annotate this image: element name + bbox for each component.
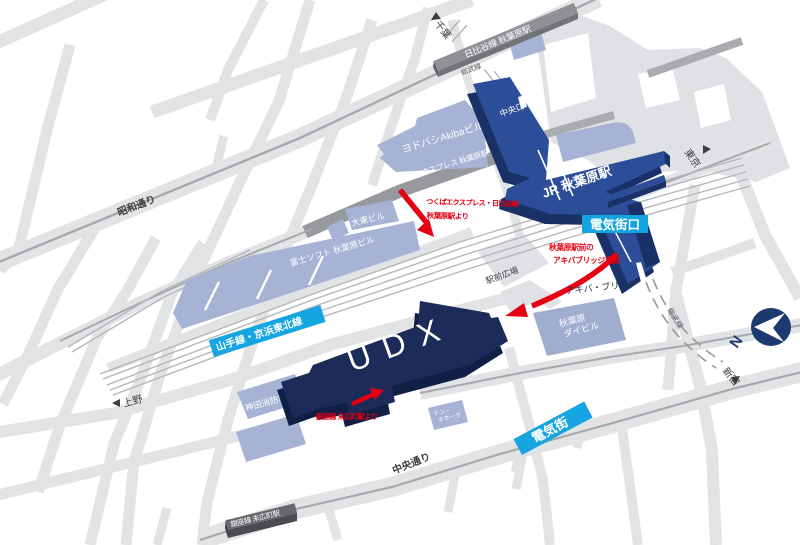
- svg-text:銀座線 末広町駅より: 銀座線 末広町駅より: [316, 412, 378, 421]
- svg-text:電気街口: 電気街口: [590, 217, 640, 232]
- svg-text:秋葉原駅より: 秋葉原駅より: [427, 210, 469, 221]
- svg-text:アキバブリッジ直結: アキバブリッジ直結: [553, 255, 620, 265]
- svg-text:秋葉原駅前の: 秋葉原駅前の: [549, 242, 594, 252]
